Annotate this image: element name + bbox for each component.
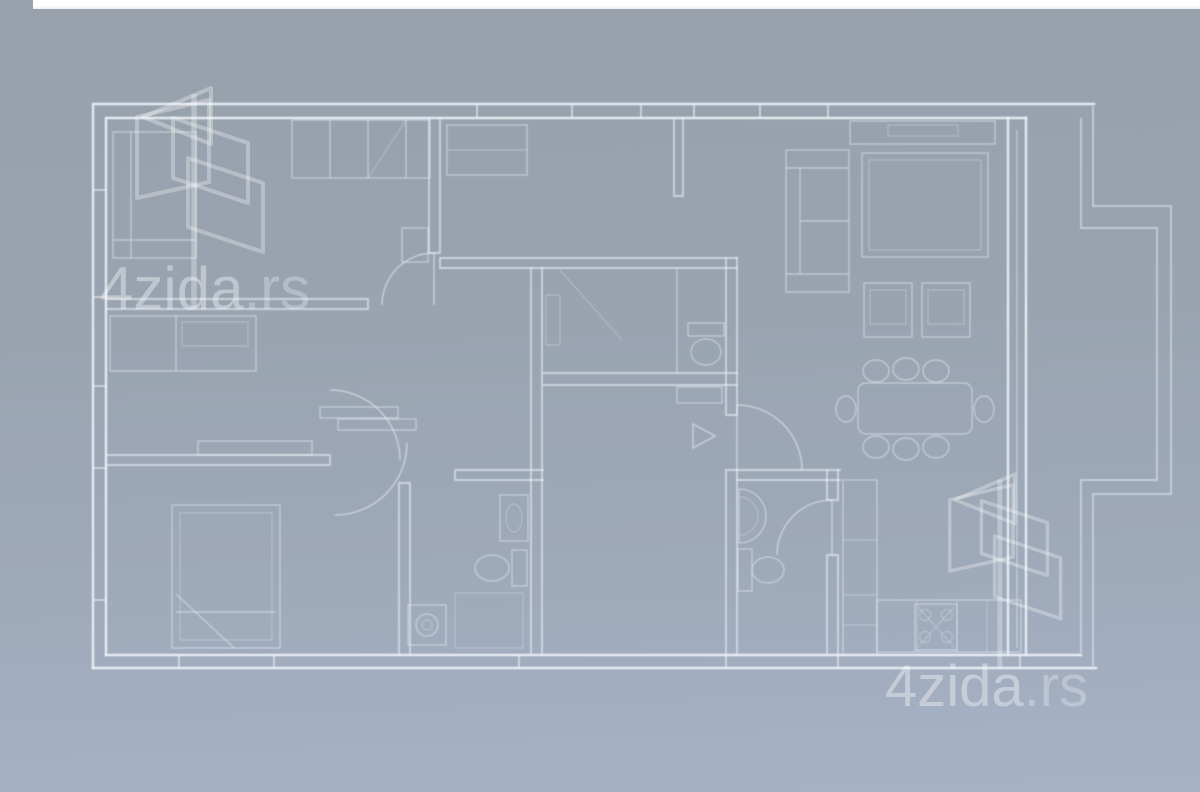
armchair-icon — [864, 283, 912, 337]
bath-counter-icon — [455, 593, 523, 648]
sink-icon — [739, 489, 766, 543]
sofa-icon — [786, 150, 849, 292]
armchair-icon — [922, 283, 970, 337]
floorplan-screenshot: 4zida.rs 4zida.rs — [0, 0, 1200, 792]
wardrobe-icon — [292, 120, 430, 178]
bathroom3-fixtures — [408, 495, 528, 648]
outer-walls — [93, 104, 1096, 668]
dresser-icon — [110, 316, 256, 371]
bedroom2-furniture — [110, 316, 416, 455]
bathroom2-fixtures — [738, 489, 784, 591]
wc-fixtures — [546, 270, 724, 365]
toilet-icon — [688, 323, 724, 365]
bedroom3-furniture — [172, 505, 280, 648]
sliding-door-icon — [320, 407, 416, 430]
shelf-icon — [546, 295, 560, 345]
watermark-text: 4zida.rs — [885, 654, 1088, 719]
window-ticks — [93, 105, 1020, 668]
shower-icon — [560, 270, 622, 340]
interior-walls — [106, 118, 840, 655]
4zida-flag-logo-icon — [950, 474, 1061, 668]
hall-closet-icon — [447, 125, 527, 175]
balcony-outline — [1081, 106, 1171, 666]
sink-icon — [500, 495, 528, 541]
washing-machine-icon — [408, 605, 446, 645]
living-room-furniture — [786, 121, 995, 460]
tv-stand-icon — [850, 121, 995, 144]
watermark-bottom-right: 4zida.rs — [885, 474, 1088, 719]
rug-icon — [862, 153, 988, 257]
dining-table-set-icon — [836, 358, 994, 460]
shelf-icon — [198, 441, 312, 455]
toilet-icon — [738, 549, 784, 591]
toilet-icon — [475, 550, 527, 586]
watermark-text: 4zida.rs — [100, 255, 310, 322]
stove-icon — [915, 604, 957, 650]
double-bed-icon — [172, 505, 280, 648]
tall-cabinet-icon — [843, 480, 877, 655]
entry-arrow-icon — [693, 424, 715, 448]
floorplan-svg: 4zida.rs 4zida.rs — [0, 0, 1200, 792]
